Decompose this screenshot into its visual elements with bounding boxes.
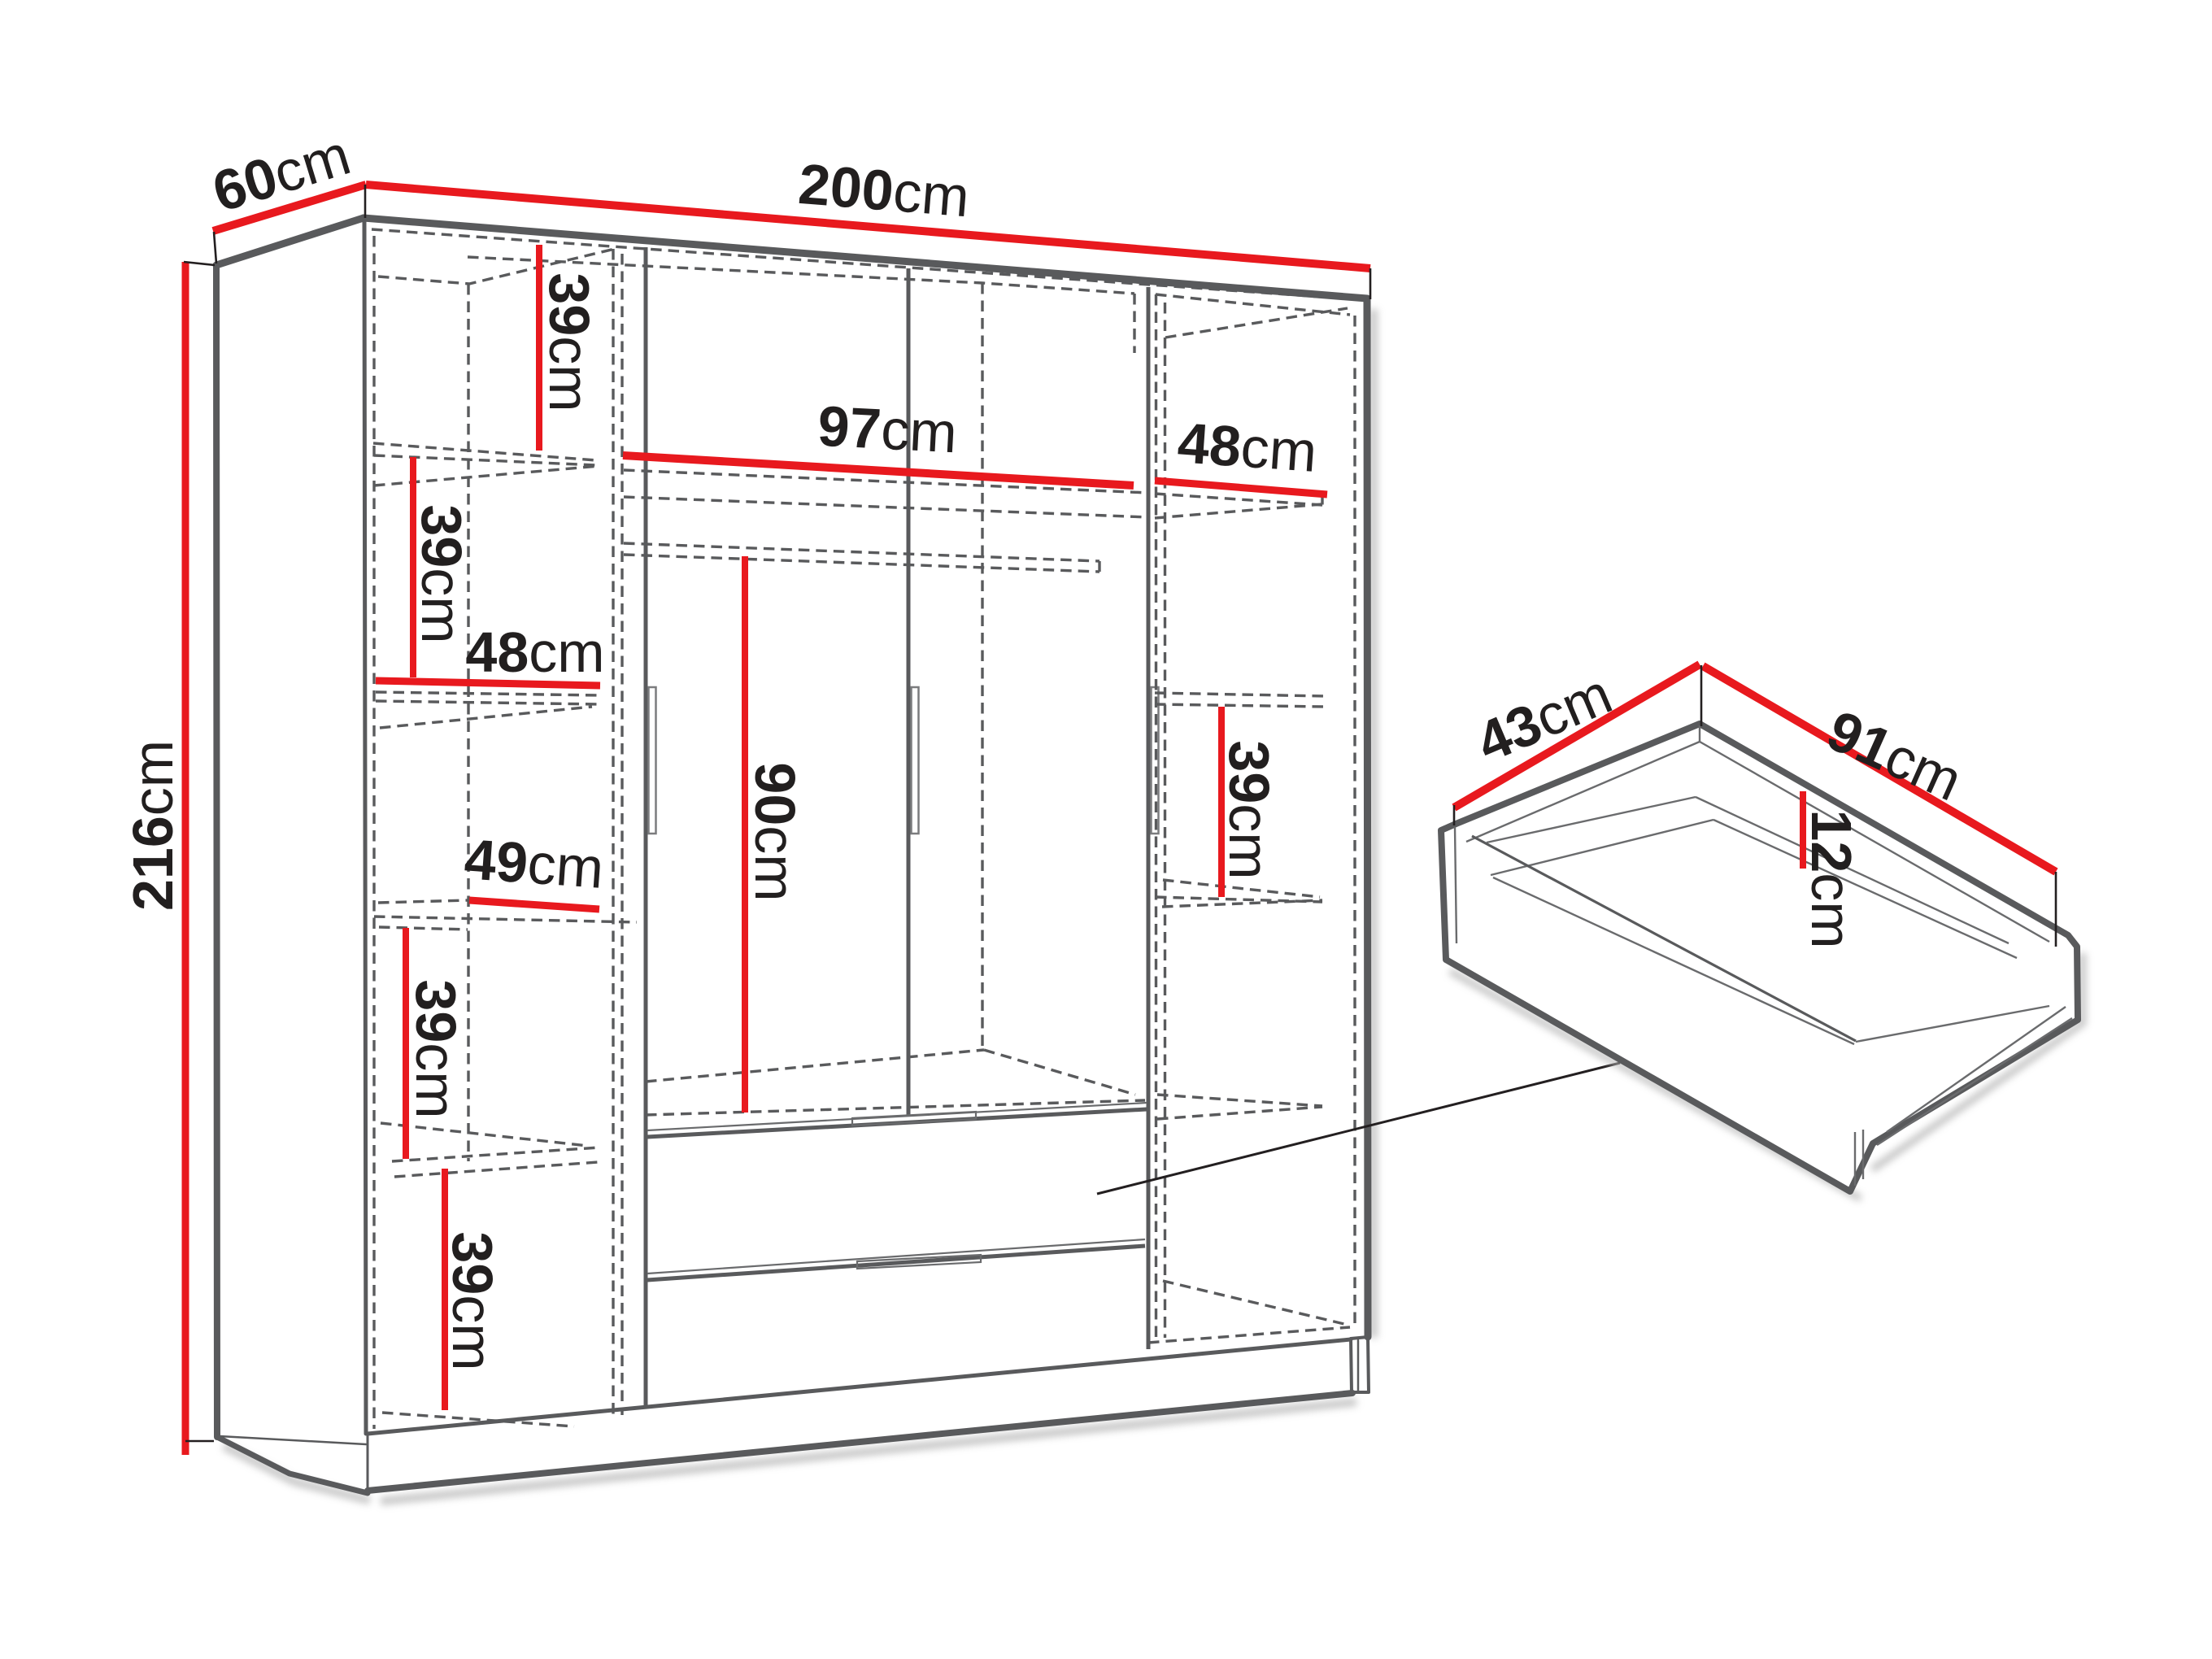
svg-text:39cm: 39cm	[441, 1231, 504, 1370]
svg-text:48cm: 48cm	[1176, 411, 1319, 484]
svg-text:97cm: 97cm	[816, 394, 959, 465]
svg-text:39cm: 39cm	[1217, 740, 1281, 879]
svg-text:90cm: 90cm	[743, 762, 807, 901]
svg-text:39cm: 39cm	[404, 979, 468, 1118]
svg-text:39cm: 39cm	[410, 504, 473, 643]
svg-text:49cm: 49cm	[463, 827, 606, 900]
svg-text:12cm: 12cm	[1800, 809, 1863, 948]
svg-text:216cm: 216cm	[121, 740, 185, 911]
svg-text:48cm: 48cm	[465, 620, 604, 684]
svg-text:39cm: 39cm	[538, 272, 601, 411]
